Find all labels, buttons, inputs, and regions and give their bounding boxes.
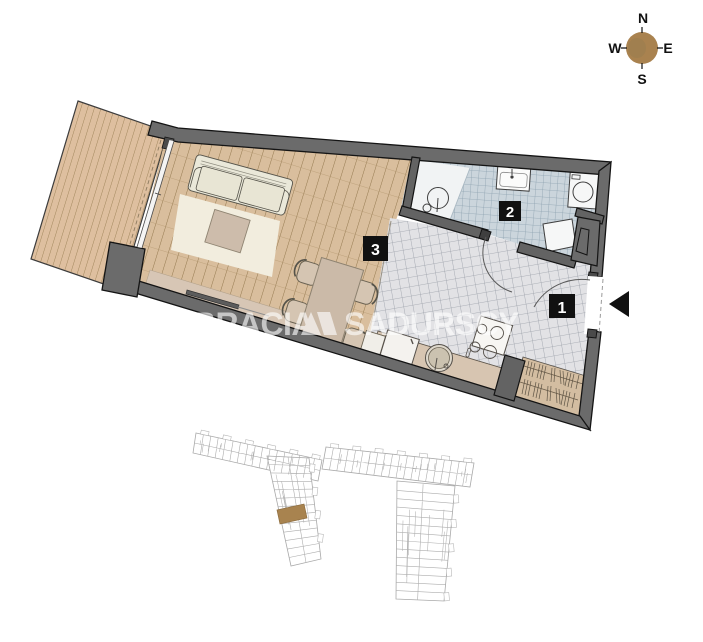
svg-text:SADURSCY: SADURSCY: [344, 306, 519, 342]
svg-text:S: S: [637, 71, 646, 87]
svg-text:BRACIA: BRACIA: [193, 306, 314, 342]
svg-text:W: W: [608, 40, 622, 56]
svg-text:3: 3: [371, 242, 380, 259]
svg-text:1: 1: [558, 300, 567, 317]
svg-text:2: 2: [506, 204, 514, 221]
svg-text:N: N: [638, 10, 648, 26]
svg-text:E: E: [663, 40, 672, 56]
